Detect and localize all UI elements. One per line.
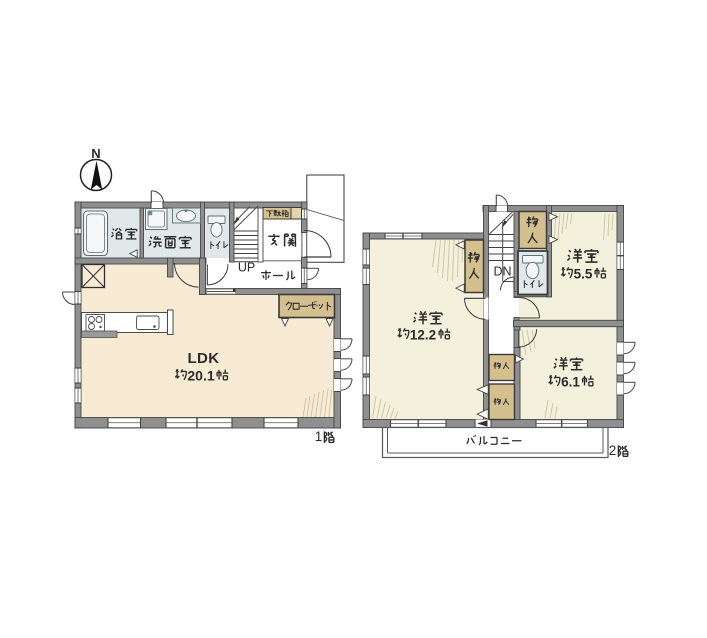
svg-text:2: 2 <box>609 443 617 458</box>
svg-text:N: N <box>91 146 100 161</box>
svg-text:1: 1 <box>315 429 323 444</box>
svg-text:12.2: 12.2 <box>410 328 436 343</box>
svg-text:DN: DN <box>493 265 511 279</box>
svg-text:20.1: 20.1 <box>187 368 214 384</box>
svg-text:LDK: LDK <box>187 350 219 367</box>
svg-text:6.1: 6.1 <box>561 375 580 390</box>
svg-text:5.5: 5.5 <box>574 267 593 282</box>
svg-text:UP: UP <box>238 261 255 275</box>
